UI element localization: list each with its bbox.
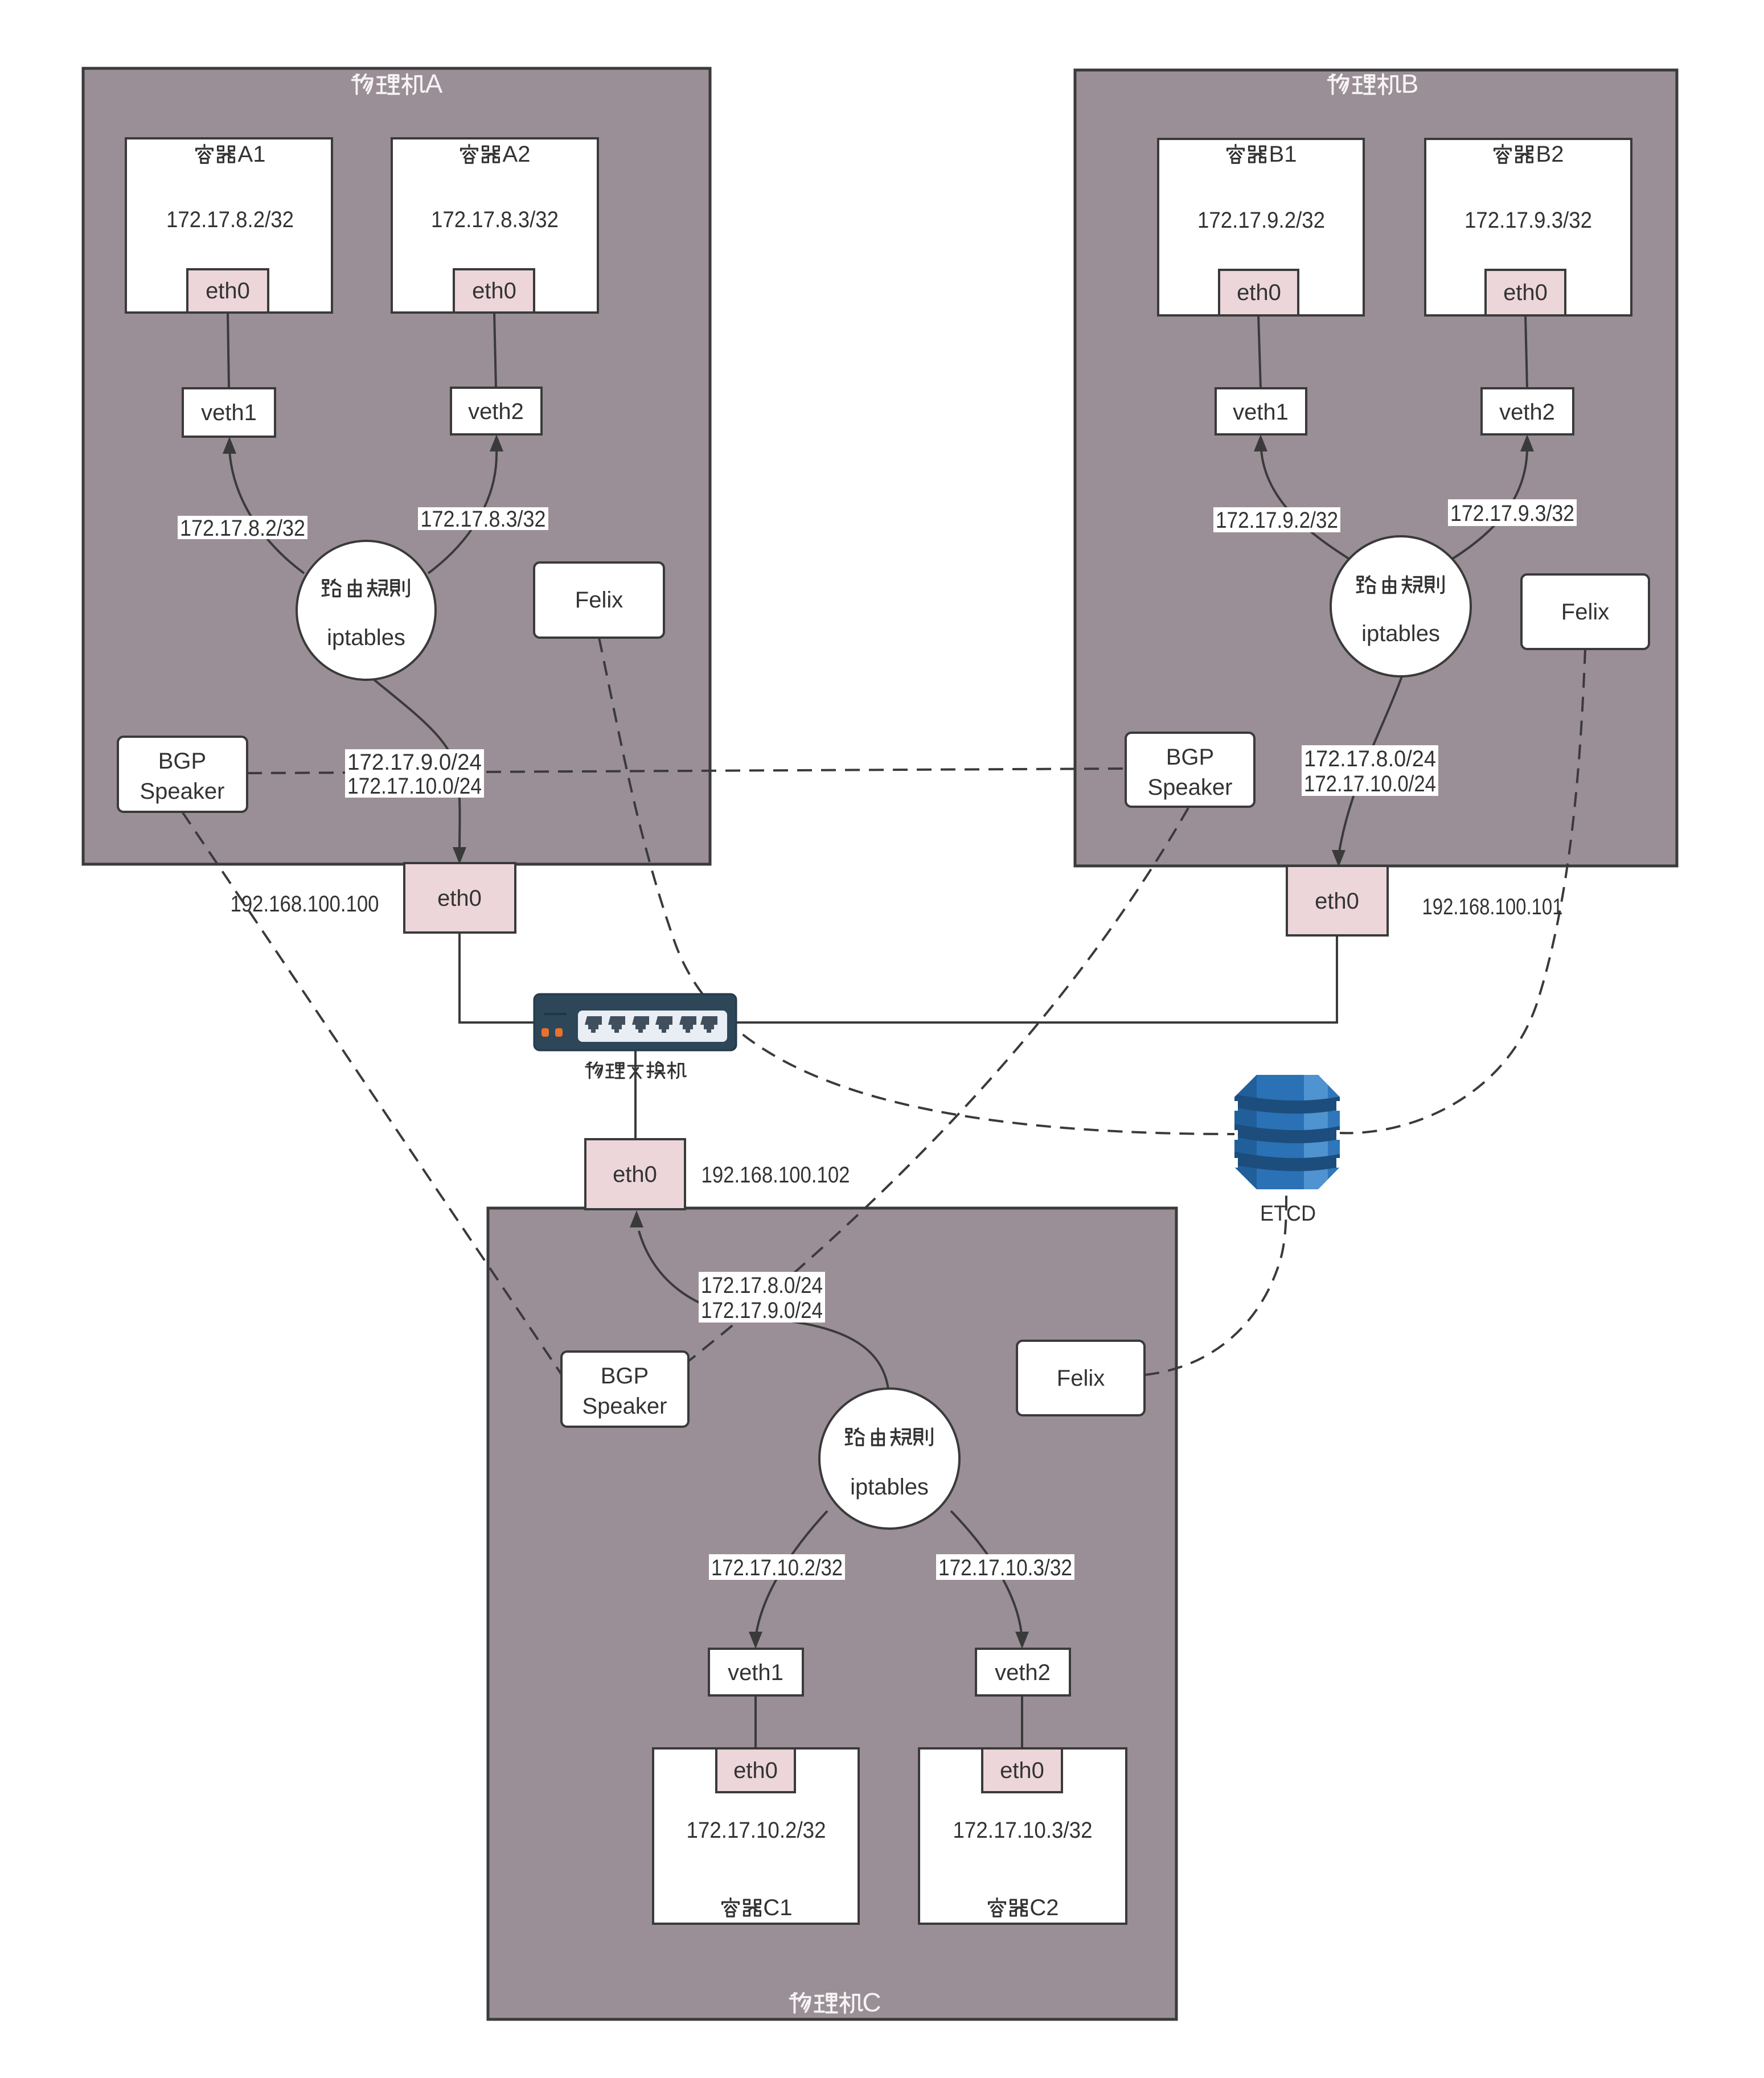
svg-text:172.17.10.3/32: 172.17.10.3/32 xyxy=(953,1818,1093,1843)
svg-text:veth2: veth2 xyxy=(468,399,524,424)
svg-text:C2: C2 xyxy=(1029,1895,1059,1920)
svg-text:172.17.10.0/24: 172.17.10.0/24 xyxy=(347,774,482,799)
svg-text:172.17.8.3/32: 172.17.8.3/32 xyxy=(431,207,559,232)
svg-text:172.17.9.0/24: 172.17.9.0/24 xyxy=(347,750,482,775)
svg-text:172.17.9.2/32: 172.17.9.2/32 xyxy=(1216,508,1338,533)
svg-text:B1: B1 xyxy=(1269,142,1297,167)
svg-text:172.17.8.2/32: 172.17.8.2/32 xyxy=(180,516,305,541)
svg-text:192.168.100.102: 192.168.100.102 xyxy=(702,1163,850,1188)
svg-text:eth0: eth0 xyxy=(472,278,516,303)
svg-text:172.17.9.0/24: 172.17.9.0/24 xyxy=(701,1298,823,1323)
svg-text:Felix: Felix xyxy=(1561,599,1609,625)
svg-text:eth0: eth0 xyxy=(437,886,482,911)
svg-text:172.17.10.3/32: 172.17.10.3/32 xyxy=(938,1555,1072,1580)
svg-text:veth2: veth2 xyxy=(995,1660,1051,1685)
svg-text:172.17.9.2/32: 172.17.9.2/32 xyxy=(1197,208,1325,233)
svg-text:Speaker: Speaker xyxy=(140,779,225,804)
svg-text:iptables: iptables xyxy=(850,1475,929,1500)
svg-text:172.17.9.3/32: 172.17.9.3/32 xyxy=(1450,501,1574,526)
svg-text:Speaker: Speaker xyxy=(582,1394,667,1419)
svg-text:veth1: veth1 xyxy=(201,400,257,425)
svg-text:172.17.10.2/32: 172.17.10.2/32 xyxy=(711,1555,843,1580)
svg-text:172.17.10.2/32: 172.17.10.2/32 xyxy=(687,1818,826,1843)
svg-text:eth0: eth0 xyxy=(1315,889,1359,914)
svg-text:C1: C1 xyxy=(763,1895,792,1920)
svg-text:Felix: Felix xyxy=(1057,1366,1105,1391)
svg-text:A1: A1 xyxy=(238,142,266,167)
svg-text:eth0: eth0 xyxy=(206,278,250,303)
svg-text:172.17.8.3/32: 172.17.8.3/32 xyxy=(421,507,546,532)
svg-text:iptables: iptables xyxy=(1361,621,1440,646)
svg-text:eth0: eth0 xyxy=(613,1162,657,1187)
svg-text:veth2: veth2 xyxy=(1499,400,1555,425)
svg-text:Speaker: Speaker xyxy=(1148,775,1233,800)
svg-text:eth0: eth0 xyxy=(733,1758,778,1783)
svg-text:BGP: BGP xyxy=(158,749,206,774)
svg-text:192.168.100.100: 192.168.100.100 xyxy=(231,892,379,917)
svg-text:172.17.10.0/24: 172.17.10.0/24 xyxy=(1304,771,1436,796)
svg-text:BGP: BGP xyxy=(601,1364,649,1389)
svg-text:172.17.8.0/24: 172.17.8.0/24 xyxy=(1304,746,1436,771)
svg-text:172.17.9.3/32: 172.17.9.3/32 xyxy=(1464,208,1592,233)
svg-text:B: B xyxy=(1401,69,1419,98)
svg-text:BGP: BGP xyxy=(1166,745,1214,770)
svg-text:192.168.100.101: 192.168.100.101 xyxy=(1422,894,1563,919)
svg-text:172.17.8.0/24: 172.17.8.0/24 xyxy=(701,1273,823,1298)
svg-text:veth1: veth1 xyxy=(728,1660,783,1685)
svg-text:eth0: eth0 xyxy=(1000,1758,1044,1783)
svg-text:172.17.8.2/32: 172.17.8.2/32 xyxy=(166,207,294,232)
svg-text:eth0: eth0 xyxy=(1503,280,1548,305)
svg-text:A: A xyxy=(425,69,443,98)
svg-text:C: C xyxy=(862,1987,881,2017)
svg-text:Felix: Felix xyxy=(575,588,623,613)
svg-text:B2: B2 xyxy=(1536,142,1564,167)
svg-text:veth1: veth1 xyxy=(1233,400,1289,425)
svg-text:iptables: iptables xyxy=(327,625,405,650)
svg-text:eth0: eth0 xyxy=(1237,280,1281,305)
svg-text:ETCD: ETCD xyxy=(1260,1202,1316,1226)
svg-text:A2: A2 xyxy=(503,142,531,167)
